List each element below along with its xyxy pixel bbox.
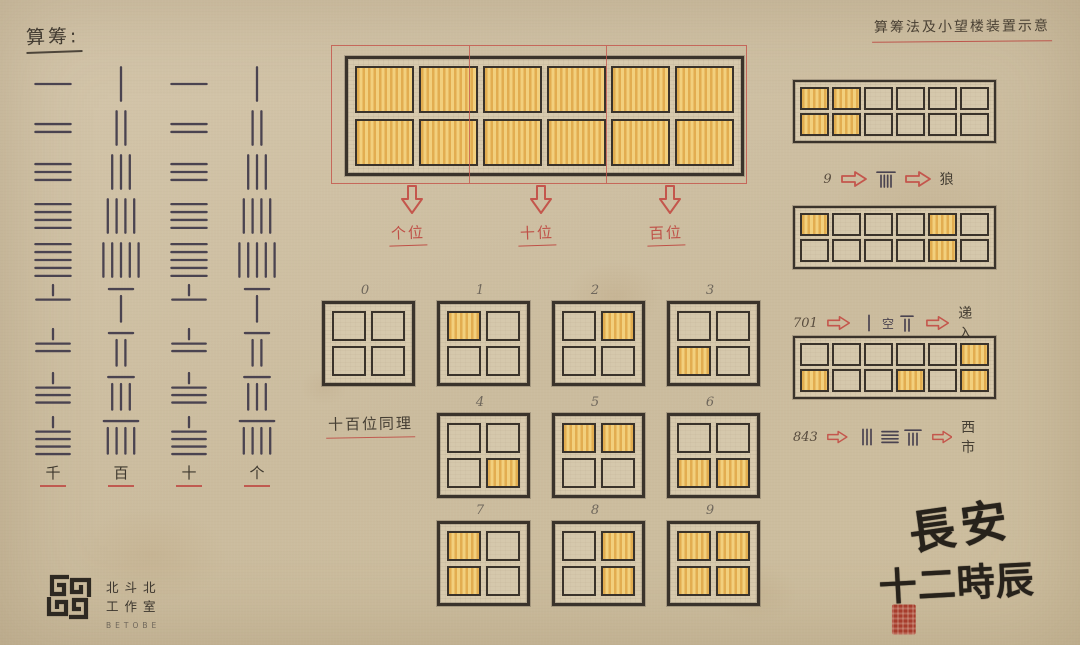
digit-label: 8 (552, 503, 638, 518)
page-subtitle: 算筹法及小望楼装置示意 (872, 15, 1052, 43)
digit-window (552, 413, 645, 498)
window-pane-lit (547, 119, 606, 166)
window-pane (562, 311, 596, 341)
rod-numeral-3 (167, 150, 211, 194)
rod-numeral-1 (31, 62, 75, 106)
window-pane-lit (601, 531, 635, 561)
signal-meaning: 狼 (940, 169, 955, 189)
digit-label: 4 (437, 395, 523, 410)
rod-numeral-3 (235, 150, 279, 194)
example-block: 843 西市 (793, 336, 985, 457)
rod-column-label: 个 (244, 462, 269, 487)
window-pane (486, 531, 520, 561)
digit-window (552, 521, 645, 606)
digit-label: 9 (667, 503, 753, 518)
window-pane-lit (355, 119, 414, 166)
window-pane-lit (960, 369, 989, 392)
digit-label: 1 (437, 283, 523, 298)
rod-numeral-2 (99, 106, 143, 150)
window-pane (716, 423, 750, 453)
window-pane (896, 213, 925, 236)
arrow-right-icon (905, 171, 931, 187)
rod-numeral-icon (31, 106, 75, 150)
digit-window (552, 301, 645, 386)
digit-label: 3 (667, 283, 753, 298)
window-pane (562, 346, 596, 376)
window-pane (486, 566, 520, 596)
rod-numeral-table: 千百十个 (30, 62, 280, 487)
window-pane-lit (716, 566, 750, 596)
rod-numeral-5 (31, 238, 75, 282)
rod-numeral-2 (31, 106, 75, 150)
window-pane-lit (800, 369, 829, 392)
rod-numeral-icon (99, 62, 143, 106)
rod-numeral-icon (167, 106, 211, 150)
rod-numeral-icon (99, 282, 143, 326)
rod-numeral-icon (99, 414, 143, 458)
rod-numeral-8 (31, 370, 75, 414)
digit-window (437, 301, 530, 386)
rod-column: 千 (30, 62, 76, 487)
digit-block-4: 4 (437, 395, 523, 498)
window-pane (960, 213, 989, 236)
window-pane (332, 346, 366, 376)
arrow-down-icon (401, 185, 423, 215)
arrow-right-icon (926, 315, 949, 331)
window-pane (864, 369, 893, 392)
window-pane (332, 311, 366, 341)
studio-logo-icon (44, 572, 94, 622)
signal-window (793, 336, 996, 399)
signal-annotation: 843 西市 (793, 417, 985, 457)
window-pane-lit (601, 566, 635, 596)
window-pane-lit (601, 423, 635, 453)
window-pane (562, 458, 596, 488)
window-pane (371, 311, 405, 341)
rod-numeral-icon (99, 106, 143, 150)
digit-label: 2 (552, 283, 638, 298)
signal-annotation: 9 狼 (793, 169, 985, 189)
window-pane (486, 423, 520, 453)
tower-window (345, 56, 744, 176)
studio-latin-name: BETOBE (106, 621, 162, 630)
rod-numeral-8 (235, 370, 279, 414)
rod-numeral-icon (31, 62, 75, 106)
page-title: 算筹: (25, 21, 82, 54)
rod-numeral-icon (167, 238, 211, 282)
digit-window (667, 301, 760, 386)
rod-numeral-7 (99, 326, 143, 370)
window-pane (371, 346, 405, 376)
window-pane-lit (716, 458, 750, 488)
rod-numeral-icon (31, 194, 75, 238)
window-pane (864, 113, 893, 136)
rod-numeral-2 (235, 106, 279, 150)
window-pane-lit (447, 566, 481, 596)
rod-numeral-icon (167, 414, 211, 458)
window-pane-lit (419, 119, 478, 166)
window-pane (896, 343, 925, 366)
window-pane (960, 113, 989, 136)
rod-numeral-icon (235, 238, 279, 282)
window-pane (832, 343, 861, 366)
rod-sequence (876, 169, 896, 189)
digit-label: 7 (437, 503, 523, 518)
rod-numeral-icon (903, 427, 923, 447)
rod-numeral-7 (31, 326, 75, 370)
rod-numeral-icon (880, 427, 900, 447)
rod-numeral-icon (235, 282, 279, 326)
arrow-right-icon (827, 429, 848, 445)
window-pane-lit (562, 423, 596, 453)
window-pane (864, 213, 893, 236)
digit-block-6: 6 (667, 395, 753, 498)
rod-numeral-icon (235, 370, 279, 414)
rod-numeral-icon (235, 414, 279, 458)
window-pane (928, 113, 957, 136)
digit-block-7: 7 (437, 503, 523, 606)
rod-numeral-8 (99, 370, 143, 414)
rod-numeral-icon (167, 282, 211, 326)
window-pane-lit (486, 458, 520, 488)
rod-numeral-6 (99, 282, 143, 326)
window-pane-lit (896, 369, 925, 392)
rod-numeral-4 (235, 194, 279, 238)
window-pane-lit (547, 66, 606, 113)
window-pane (486, 311, 520, 341)
rod-numeral-icon (167, 150, 211, 194)
rod-numeral-icon (31, 414, 75, 458)
rod-column-label: 百 (108, 462, 133, 487)
window-pane (864, 239, 893, 262)
rod-numeral-3 (31, 150, 75, 194)
digit-block-3: 3 (667, 283, 753, 386)
digit-window (667, 413, 760, 498)
window-pane-lit (483, 66, 542, 113)
window-pane (677, 311, 711, 341)
window-pane (447, 423, 481, 453)
rod-column: 百 (98, 62, 144, 487)
rod-numeral-icon (31, 282, 75, 326)
rod-numeral-9 (235, 414, 279, 458)
example-block: 9 狼 (793, 80, 985, 189)
rod-numeral-9 (31, 414, 75, 458)
digit-block-9: 9 (667, 503, 753, 606)
rod-numeral-icon (167, 194, 211, 238)
rod-numeral-icon (876, 169, 896, 189)
rod-column-label: 十 (176, 462, 201, 487)
studio-name-line1: 北斗北 (106, 578, 162, 597)
window-pane (486, 346, 520, 376)
rod-numeral-9 (99, 414, 143, 458)
rod-numeral-7 (167, 326, 211, 370)
rod-numeral-icon (99, 150, 143, 194)
window-pane-lit (960, 343, 989, 366)
digit-window (322, 301, 415, 386)
window-pane-lit (928, 213, 957, 236)
rod-numeral-2 (167, 106, 211, 150)
window-pane-lit (419, 66, 478, 113)
digit-block-2: 2 (552, 283, 638, 386)
rod-numeral-icon (235, 194, 279, 238)
arrow-down-icon (530, 185, 552, 215)
rod-numeral-6 (167, 282, 211, 326)
rod-column: 十 (166, 62, 212, 487)
rod-numeral-9 (167, 414, 211, 458)
window-pane-lit (677, 346, 711, 376)
window-pane (601, 458, 635, 488)
window-pane (716, 346, 750, 376)
window-pane-lit (716, 531, 750, 561)
signal-meaning: 西市 (961, 417, 985, 457)
window-pane-lit (832, 113, 861, 136)
rod-numeral-icon (859, 313, 879, 333)
rod-sequence (857, 427, 923, 447)
window-pane (960, 87, 989, 110)
rod-numeral-icon (99, 194, 143, 238)
window-pane (562, 531, 596, 561)
rod-numeral-4 (31, 194, 75, 238)
digit-block-8: 8 (552, 503, 638, 606)
digit-window (437, 413, 530, 498)
window-pane-lit (601, 311, 635, 341)
rod-numeral-1 (235, 62, 279, 106)
window-pane-lit (677, 531, 711, 561)
rod-numeral-icon (31, 326, 75, 370)
rod-numeral-3 (99, 150, 143, 194)
signal-number: 701 (793, 316, 818, 331)
calligraphy-line2: 十二時辰 (877, 549, 1036, 612)
digit-label: 5 (552, 395, 638, 410)
signal-window (793, 80, 996, 143)
rod-numeral-6 (235, 282, 279, 326)
window-pane-lit (447, 311, 481, 341)
rod-numeral-icon (167, 370, 211, 414)
window-pane (447, 346, 481, 376)
digit-label: 0 (322, 283, 408, 298)
window-pane (832, 239, 861, 262)
window-pane (896, 113, 925, 136)
arrow-right-icon (841, 171, 867, 187)
rod-numeral-5 (167, 238, 211, 282)
place-label-units: 个位 (389, 221, 428, 246)
window-pane-lit (677, 458, 711, 488)
rod-numeral-icon (235, 150, 279, 194)
window-pane (864, 343, 893, 366)
artist-seal (892, 605, 916, 635)
arrow-right-icon (827, 315, 850, 331)
rod-numeral-icon (31, 370, 75, 414)
window-pane (928, 343, 957, 366)
window-pane (677, 423, 711, 453)
window-pane (800, 343, 829, 366)
rod-numeral-icon (167, 62, 211, 106)
rod-numeral-icon (99, 370, 143, 414)
diagram-sheet: 算筹: 算筹法及小望楼装置示意 千百十个 个位 十位 百位 0123456789… (0, 0, 1080, 645)
rod-numeral-icon (31, 238, 75, 282)
studio-name: 北斗北 工作室 BETOBE (106, 572, 162, 630)
window-pane (800, 239, 829, 262)
example-block: 701 空 递入 (793, 206, 985, 343)
rod-column: 个 (234, 62, 280, 487)
window-pane (960, 239, 989, 262)
signal-window (793, 206, 996, 269)
studio-name-line2: 工作室 (106, 597, 162, 616)
rod-numeral-8 (167, 370, 211, 414)
rod-numeral-5 (235, 238, 279, 282)
place-label-hundreds: 百位 (647, 221, 686, 246)
rod-numeral-icon (99, 326, 143, 370)
window-pane-lit (928, 239, 957, 262)
window-pane-lit (675, 119, 734, 166)
rod-numeral-5 (99, 238, 143, 282)
rod-numeral-4 (99, 194, 143, 238)
signal-number: 9 (823, 172, 831, 187)
rod-numeral-1 (167, 62, 211, 106)
window-pane (716, 311, 750, 341)
digit-window (437, 521, 530, 606)
window-pane-lit (800, 213, 829, 236)
window-pane (928, 87, 957, 110)
window-pane (832, 369, 861, 392)
window-pane (864, 87, 893, 110)
note-same-principle: 十百位同理 (326, 412, 415, 439)
rod-numeral-4 (167, 194, 211, 238)
calligraphy-title: 長安 十二時辰 (875, 487, 1075, 645)
arrow-right-icon (932, 429, 953, 445)
window-pane-lit (800, 113, 829, 136)
window-pane-lit (447, 531, 481, 561)
rod-numeral-icon (897, 313, 917, 333)
window-pane (601, 346, 635, 376)
rod-sequence: 空 (859, 313, 917, 333)
window-pane-lit (677, 566, 711, 596)
arrow-down-icon (659, 185, 681, 215)
window-pane (896, 87, 925, 110)
signal-number: 843 (793, 430, 818, 445)
rod-numeral-icon (31, 150, 75, 194)
empty-place-marker: 空 (882, 315, 894, 332)
rod-numeral-7 (235, 326, 279, 370)
digit-label: 6 (667, 395, 753, 410)
rod-column-label: 千 (40, 462, 65, 487)
window-pane (928, 369, 957, 392)
window-pane (447, 458, 481, 488)
place-label-tens: 十位 (518, 221, 557, 246)
window-pane (832, 213, 861, 236)
digit-block-5: 5 (552, 395, 638, 498)
rod-numeral-icon (167, 326, 211, 370)
rod-numeral-icon (235, 106, 279, 150)
rod-numeral-icon (99, 238, 143, 282)
digit-block-0: 0 (322, 283, 408, 386)
digit-window (667, 521, 760, 606)
rod-numeral-6 (31, 282, 75, 326)
window-pane-lit (800, 87, 829, 110)
rod-numeral-icon (857, 427, 877, 447)
window-pane-lit (611, 119, 670, 166)
rod-numeral-1 (99, 62, 143, 106)
window-pane-lit (611, 66, 670, 113)
window-pane (896, 239, 925, 262)
rod-numeral-icon (235, 326, 279, 370)
window-pane-lit (832, 87, 861, 110)
window-pane (562, 566, 596, 596)
window-pane-lit (355, 66, 414, 113)
window-pane-lit (483, 119, 542, 166)
studio-credit: 北斗北 工作室 BETOBE (44, 572, 162, 630)
digit-block-1: 1 (437, 283, 523, 386)
window-pane-lit (675, 66, 734, 113)
rod-numeral-icon (235, 62, 279, 106)
